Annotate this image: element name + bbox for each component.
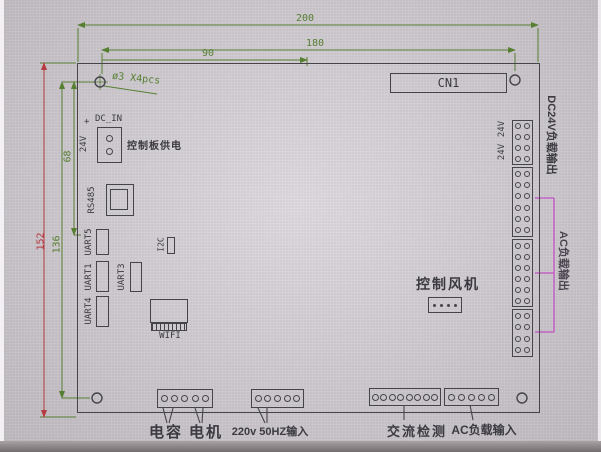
uart4-label: UART4 [84,293,94,329]
pin [515,254,521,260]
uart3-label: UART3 [117,259,127,295]
pin [255,395,262,402]
pin [515,123,521,129]
pin [524,123,530,129]
pin [192,395,199,402]
pin [406,394,413,401]
pin [524,182,530,188]
pin [454,304,457,307]
pin [171,395,178,402]
uart1-connector [96,261,109,292]
pin-row [513,251,532,262]
dim-90-label: 90 [196,48,220,59]
fan-pins [429,298,461,312]
photo-edge-bottom [0,441,601,452]
ac-output-pins-3 [513,310,532,356]
ac-detect-connector [369,388,441,406]
pin [524,193,530,199]
dc-in-plus-label: + [84,117,89,127]
dc-in-label: DC_IN [95,114,122,124]
pin-row [513,345,532,357]
pin [181,395,188,402]
wifi-label: WIFI [152,331,188,341]
ac-output-label: AC负载输出 [556,225,572,297]
dc-in-pins [98,128,121,162]
pin [515,182,521,188]
pin [274,395,281,402]
pin [515,313,521,319]
dim-136-label: 136 [52,232,63,258]
capacitor-label: 电容 [146,421,186,442]
pin-row [513,213,532,224]
pin [448,394,455,401]
pin [524,205,530,211]
pin-row [513,191,532,202]
mains-input-pins [252,390,303,407]
uart4-connector [96,296,109,327]
pin [515,216,521,222]
pin-row [513,273,532,284]
dc-in-connector [97,127,122,163]
pin [433,304,436,307]
pin [447,304,450,307]
dc-in-desc-label: 控制板供电 [127,137,182,152]
cn1-connector: CN1 [390,73,507,93]
pin [161,395,168,402]
i2c-connector [167,237,175,254]
pin [488,394,495,401]
pin [389,394,396,401]
pin-row [513,310,532,322]
uart3-connector [130,262,142,292]
pin-row [513,322,532,334]
pin [524,134,530,140]
dc-in-voltage-label: 24V [79,132,89,156]
pin [372,394,379,401]
pin [524,347,530,353]
fan-control-label: 控制风机 [415,274,481,294]
dim-152-label: 152 [36,229,47,255]
uart5-connector [96,229,109,255]
pin-row [513,284,532,295]
right-24v-a-label: 24V [497,117,507,141]
board-outline [77,63,540,413]
pin [515,193,521,199]
uart1-label: UART1 [84,259,94,295]
pin [515,324,521,330]
wifi-pin-strip [151,323,187,331]
pin [515,205,521,211]
mains-input-label: 220v 50HZ输入 [220,423,320,439]
pin [524,313,530,319]
ac-output-connector-3 [512,309,533,357]
ac-detect-pins [370,389,440,405]
pin [515,243,521,249]
pin-row [513,153,532,164]
mains-input-connector [251,389,304,408]
pin [524,276,530,282]
pin [524,265,530,271]
pin [524,298,530,304]
pin-row [513,333,532,345]
pin [284,395,291,402]
pin [515,265,521,271]
dim-200-label: 200 [290,13,320,24]
pin-row [513,202,532,213]
pin [202,395,209,402]
pin-row [513,143,532,154]
pin [468,394,475,401]
photo-edge-left [0,0,4,443]
pin [524,243,530,249]
rs485-inner [110,189,128,210]
cap-motor-pins [158,390,212,407]
rs485-connector [106,184,134,216]
pin [524,156,530,162]
pin [397,394,404,401]
pin [478,394,485,401]
pin [515,287,521,293]
pin [515,145,521,151]
pin-row [513,225,532,236]
pin [524,336,530,342]
pin [524,227,530,233]
pin [524,216,530,222]
pin [264,395,271,402]
pin [515,276,521,282]
pin [524,145,530,151]
pin-row [513,295,532,306]
pin [515,156,521,162]
pin [515,298,521,304]
pin [515,134,521,140]
dc24v-output-pins [513,121,532,164]
pin-row [513,179,532,190]
dc24v-output-label: DC24V负载输出 [544,89,560,181]
pin-row [513,121,532,132]
pin [524,171,530,177]
ac-load-input-label: AC负载输入 [444,421,524,438]
dim-68-label: 68 [63,147,74,167]
pin-row [513,262,532,273]
wifi-module [150,299,188,323]
dim-180-label: 180 [300,38,330,49]
pin [458,394,465,401]
ac-load-input-connector [444,388,499,406]
cap-motor-connector [157,389,213,408]
ac-load-input-pins [445,389,498,405]
pin [423,394,430,401]
pin [431,394,438,401]
pin [515,171,521,177]
pin [106,148,113,155]
ac-output-pins-2 [513,240,532,306]
ac-output-connector-1 [512,167,533,237]
right-24v-b-label: 24V [497,140,507,164]
ac-detect-label: 交流检测 [387,421,445,440]
pin [515,347,521,353]
pin-row [513,240,532,251]
pin [524,287,530,293]
cn1-label: CN1 [438,76,460,90]
pcb-dimension-drawing: 200 180 90 152 136 68 ø3 X4pcs CN1 DC_IN… [0,0,601,452]
pin-row [513,168,532,179]
pin [440,304,443,307]
pin [380,394,387,401]
pin-row [513,132,532,143]
ac-output-connector-2 [512,239,533,307]
ac-output-pins-1 [513,168,532,236]
fan-connector [428,297,462,313]
pin [515,336,521,342]
pin [524,324,530,330]
uart5-label: UART5 [84,224,94,260]
pin [515,227,521,233]
rs485-label: RS485 [87,180,97,220]
pin [414,394,421,401]
pin [106,135,113,142]
i2c-label: I2C [157,233,166,257]
pin [524,254,530,260]
dc24v-output-connector [512,120,533,165]
pin [293,395,300,402]
